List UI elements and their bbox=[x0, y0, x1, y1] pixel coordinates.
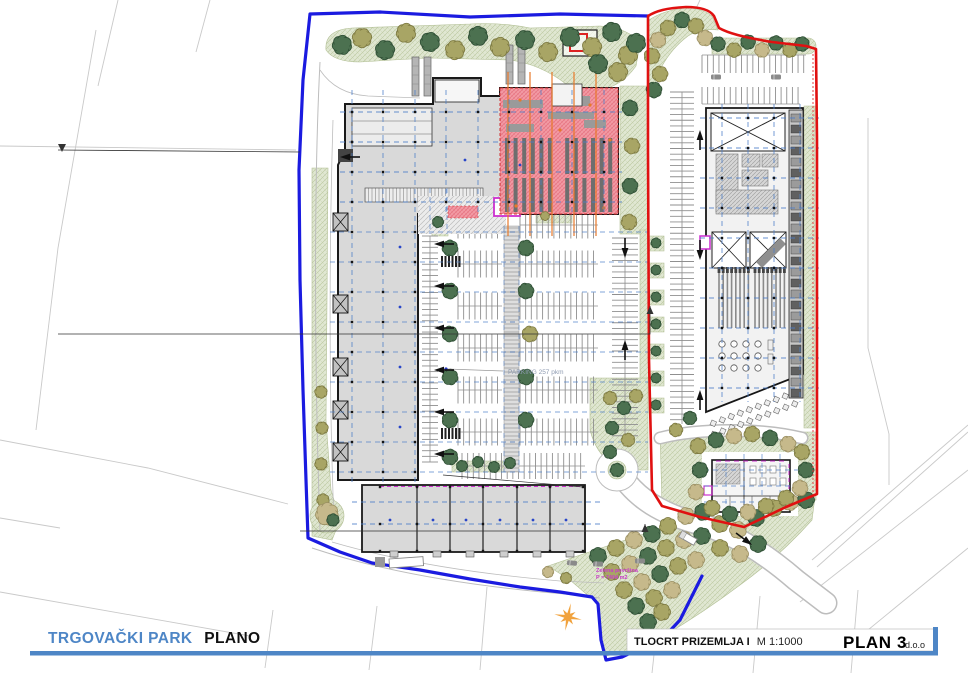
drawing-title-text: TLOCRT PRIZEMLJA I bbox=[634, 636, 750, 648]
parking-count-label: PARKING 257 pkm bbox=[508, 369, 564, 376]
project-title: TRGOVAČKI PARK PLANO bbox=[48, 629, 261, 647]
project-title-black: PLANO bbox=[204, 630, 260, 647]
title-rule-endcap bbox=[933, 627, 938, 655]
green-area-label: Zelena površina bbox=[596, 568, 639, 574]
title-bar: TRGOVAČKI PARK PLANO TLOCRT PRIZEMLJA I … bbox=[30, 627, 938, 656]
drawing-title: TLOCRT PRIZEMLJA I M 1:1000 bbox=[634, 636, 803, 648]
company-suffix: d.o.o bbox=[905, 640, 925, 650]
company-logo: PLAN 3 bbox=[843, 633, 907, 652]
scale-label: M 1:1000 bbox=[757, 636, 803, 648]
site-plan-canvas: PARKING 257 pkm Zelena površina P = 7404… bbox=[0, 0, 968, 673]
title-rule bbox=[30, 651, 938, 656]
supermarket-area bbox=[500, 72, 618, 236]
north-sun-icon bbox=[554, 603, 581, 630]
site-plan-drawing: PARKING 257 pkm Zelena površina P = 7404… bbox=[0, 0, 968, 673]
project-title-blue: TRGOVAČKI PARK bbox=[48, 629, 193, 647]
green-area-value: P = 7404 m2 bbox=[596, 575, 628, 581]
